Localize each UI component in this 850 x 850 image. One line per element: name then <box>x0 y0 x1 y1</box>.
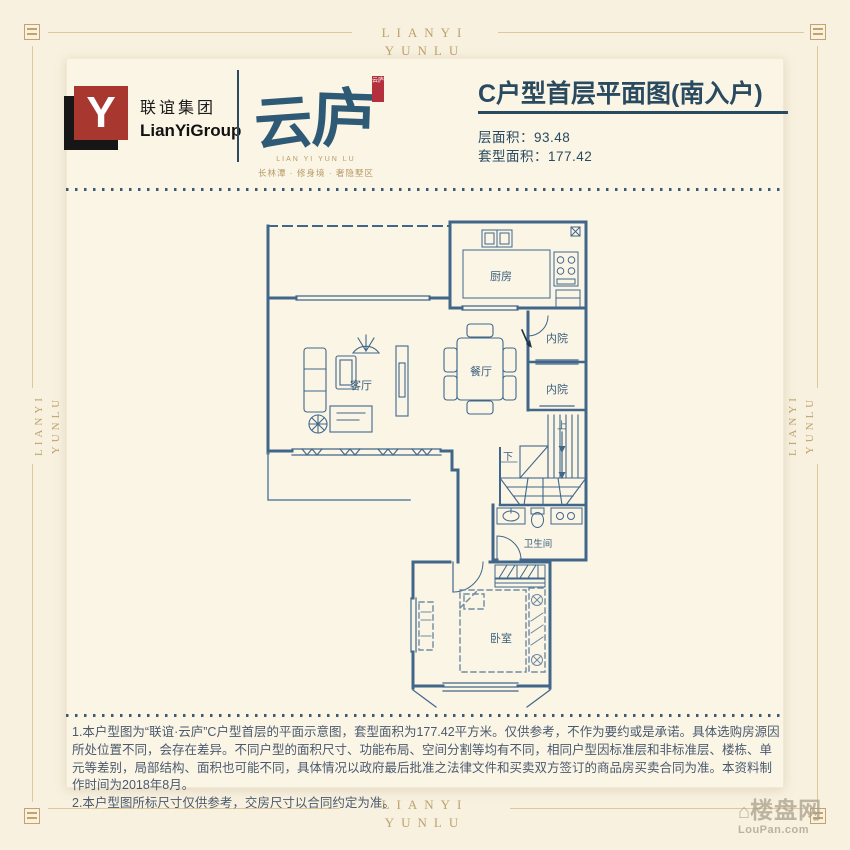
watermark: ⌂楼盘网 LouPan.com <box>738 798 850 836</box>
title-underline <box>478 111 788 114</box>
brand-wordmark-right: LIANYI YUNLU <box>785 360 819 490</box>
room-label-dining: 餐厅 <box>470 364 492 378</box>
room-label-courtyard-lower: 内院 <box>546 382 568 396</box>
room-label-kitchen: 厨房 <box>490 270 512 283</box>
logo-letter: Y <box>86 91 115 135</box>
house-icon: ⌂ <box>738 801 750 823</box>
frame-line <box>32 46 33 388</box>
brand-line1: LIANYI <box>0 24 850 42</box>
group-logo: Y <box>64 86 130 152</box>
group-name-en: LianYiGroup <box>140 121 241 141</box>
watermark-cn: 楼盘网 <box>750 797 822 823</box>
floor-area: 层面积：93.48 <box>478 126 570 146</box>
disclaimer-line2: 2.本户型图所标尺寸仅供参考，交房尺寸以合同约定为准。 <box>72 795 780 813</box>
project-tagline: 长林潭 · 修身境 · 奢隐墅区 <box>240 167 392 179</box>
frame-line <box>32 464 33 802</box>
watermark-en: LouPan.com <box>738 824 850 836</box>
floor-plan: 厨房 内院 内院 餐厅 客厅 上 下 卫生间 卧室 <box>255 212 595 734</box>
dotted-separator-top <box>66 188 783 191</box>
page-title: C户型首层平面图(南入户) <box>478 74 790 110</box>
frame-line <box>817 46 818 388</box>
stair-up-label: 上 <box>557 420 567 432</box>
header-divider <box>237 70 239 162</box>
disclaimer-line1: 1.本户型图为“联谊·云庐”C户型首层的平面示意图，套型面积为177.42平方米… <box>72 724 780 795</box>
brand-wordmark-top: LIANYI YUNLU <box>0 24 850 60</box>
project-name-en: LIAN YI YUN LU <box>246 156 386 163</box>
room-label-living: 客厅 <box>350 378 372 392</box>
room-label-bedroom: 卧室 <box>490 631 512 645</box>
poster-page: LIANYI YUNLU LIANYI YUNLU LIANYI YUNLU L… <box>0 0 850 850</box>
brand-line2: YUNLU <box>0 814 850 832</box>
logo-red-square: Y <box>74 86 128 140</box>
unit-area: 套型面积：177.42 <box>478 145 592 165</box>
project-logo-calligraphy: 云 庐 <box>254 66 374 166</box>
room-label-courtyard-upper: 内院 <box>546 331 568 345</box>
red-seal-stamp: 云庐 <box>372 76 384 102</box>
dotted-separator-bottom <box>66 714 783 717</box>
disclaimer-text: 1.本户型图为“联谊·云庐”C户型首层的平面示意图，套型面积为177.42平方米… <box>72 724 780 813</box>
room-label-bathroom: 卫生间 <box>524 538 553 550</box>
stair-down-label: 下 <box>503 452 513 463</box>
brand-wordmark-left: LIANYI YUNLU <box>31 360 65 490</box>
group-name-cn: 联谊集团 <box>140 94 216 118</box>
floor-plan-svg: 厨房 内院 内院 餐厅 客厅 上 下 卫生间 卧室 <box>255 212 595 734</box>
frame-line <box>817 464 818 802</box>
